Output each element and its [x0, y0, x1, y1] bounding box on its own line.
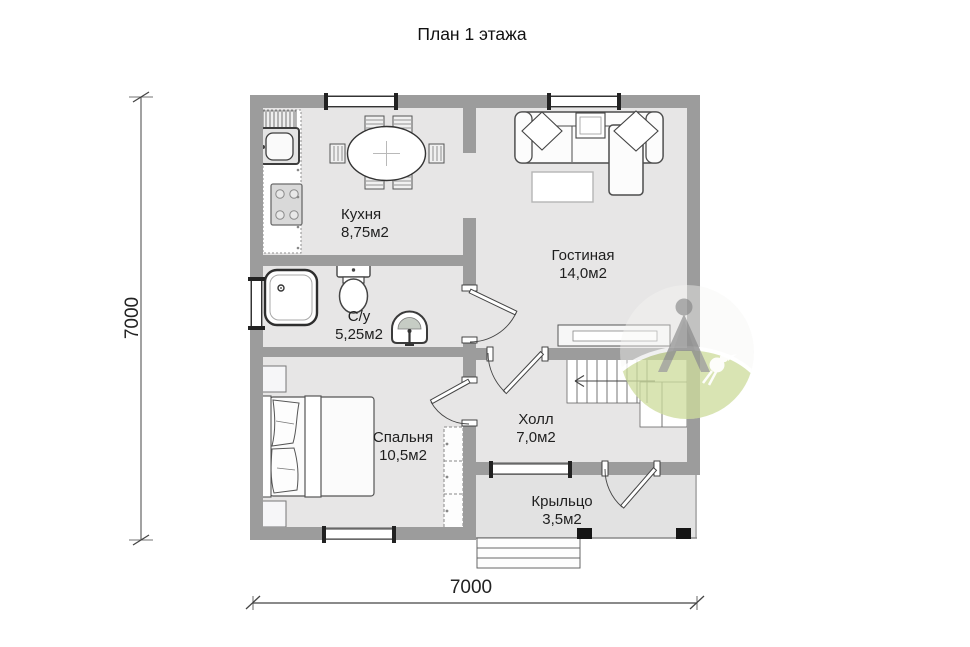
room-area: 7,0м2	[476, 429, 596, 447]
room-name: Гостиная	[523, 247, 643, 265]
room-name: Спальня	[343, 429, 463, 447]
floor-plan-canvas	[0, 0, 970, 647]
wall-inner-vertical	[463, 108, 476, 153]
room-label-hall: Холл 7,0м2	[476, 411, 596, 447]
wall-bathroom-bedroom	[257, 347, 475, 357]
floor-plan-page: План 1 этажа Кухня 8,75м2 Гостиная 14,0м…	[0, 0, 970, 647]
dish-rack-icon	[263, 111, 296, 129]
window-icon	[322, 526, 396, 543]
room-label-living-room: Гостиная 14,0м2	[523, 247, 643, 283]
room-name: С/у	[299, 308, 419, 326]
coffee-table-icon	[532, 172, 593, 202]
kitchen-counter-icon	[261, 110, 302, 253]
wall-living-hall	[463, 348, 490, 360]
room-name: Холл	[476, 411, 596, 429]
wall-top	[250, 95, 700, 108]
toilet-icon	[337, 263, 370, 313]
room-area: 5,25м2	[299, 326, 419, 344]
dimension-label-bottom: 7000	[421, 577, 521, 599]
room-label-kitchen: Кухня 8,75м2	[341, 206, 461, 242]
room-label-bathroom: С/у 5,25м2	[299, 308, 419, 344]
entry-steps-icon	[477, 538, 580, 568]
room-area: 3,5м2	[502, 511, 622, 529]
room-name: Крыльцо	[502, 493, 622, 511]
room-label-porch: Крыльцо 3,5м2	[502, 493, 622, 529]
wall-inner-vertical	[463, 423, 476, 540]
wall-kitchen-bathroom	[257, 255, 475, 266]
page-title: План 1 этажа	[372, 24, 572, 45]
sink-icon	[261, 128, 299, 164]
room-area: 8,75м2	[341, 224, 461, 242]
room-area: 10,5м2	[343, 447, 463, 465]
dimension-label-left: 7000	[122, 288, 142, 348]
wall-inner-vertical	[463, 218, 476, 290]
stove-icon	[271, 184, 302, 225]
room-area: 14,0м2	[523, 265, 643, 283]
room-name: Кухня	[341, 206, 461, 224]
blanket-fold	[305, 396, 321, 497]
room-label-bedroom: Спальня 10,5м2	[343, 429, 463, 465]
